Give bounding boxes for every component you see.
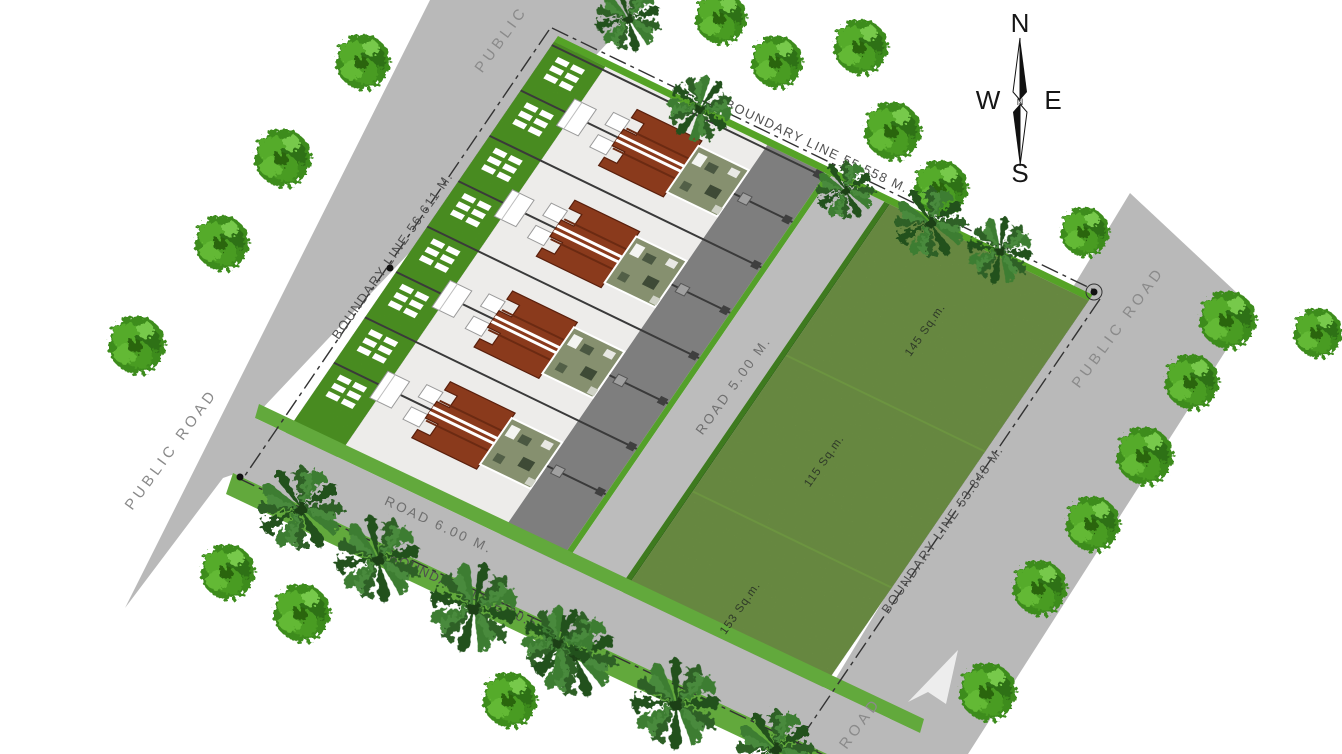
tree-icon xyxy=(336,35,390,89)
tree-icon xyxy=(834,20,888,74)
tree-icon xyxy=(1066,497,1120,551)
site-plan-page: PUBLIC PUBLIC ROAD PUBLIC ROAD ROAD ROAD… xyxy=(0,0,1342,754)
site-plan-drawing: PUBLIC PUBLIC ROAD PUBLIC ROAD ROAD ROAD… xyxy=(0,0,1342,754)
tree-icon xyxy=(201,545,255,599)
tree-icon xyxy=(1061,208,1110,257)
compass-needle-center-label: N xyxy=(1017,97,1024,107)
survey-dot xyxy=(1091,289,1098,296)
tree-icon xyxy=(960,664,1017,721)
tree-icon xyxy=(274,585,331,642)
compass-west-label: W xyxy=(976,85,1001,115)
tree-icon xyxy=(751,36,802,87)
compass-north-label: N xyxy=(1011,8,1030,38)
tree-icon xyxy=(1013,561,1067,615)
tree-icon xyxy=(195,216,249,270)
tree-icon xyxy=(483,673,537,727)
tree-icon xyxy=(255,130,312,187)
tree-icon xyxy=(1200,292,1257,349)
tree-icon xyxy=(865,103,922,160)
survey-dot xyxy=(237,474,244,481)
tree-icon xyxy=(1165,355,1219,409)
tree-icon xyxy=(109,317,166,374)
tree-icon xyxy=(1117,428,1174,485)
compass-east-label: E xyxy=(1044,85,1061,115)
tree-icon xyxy=(1294,309,1342,358)
